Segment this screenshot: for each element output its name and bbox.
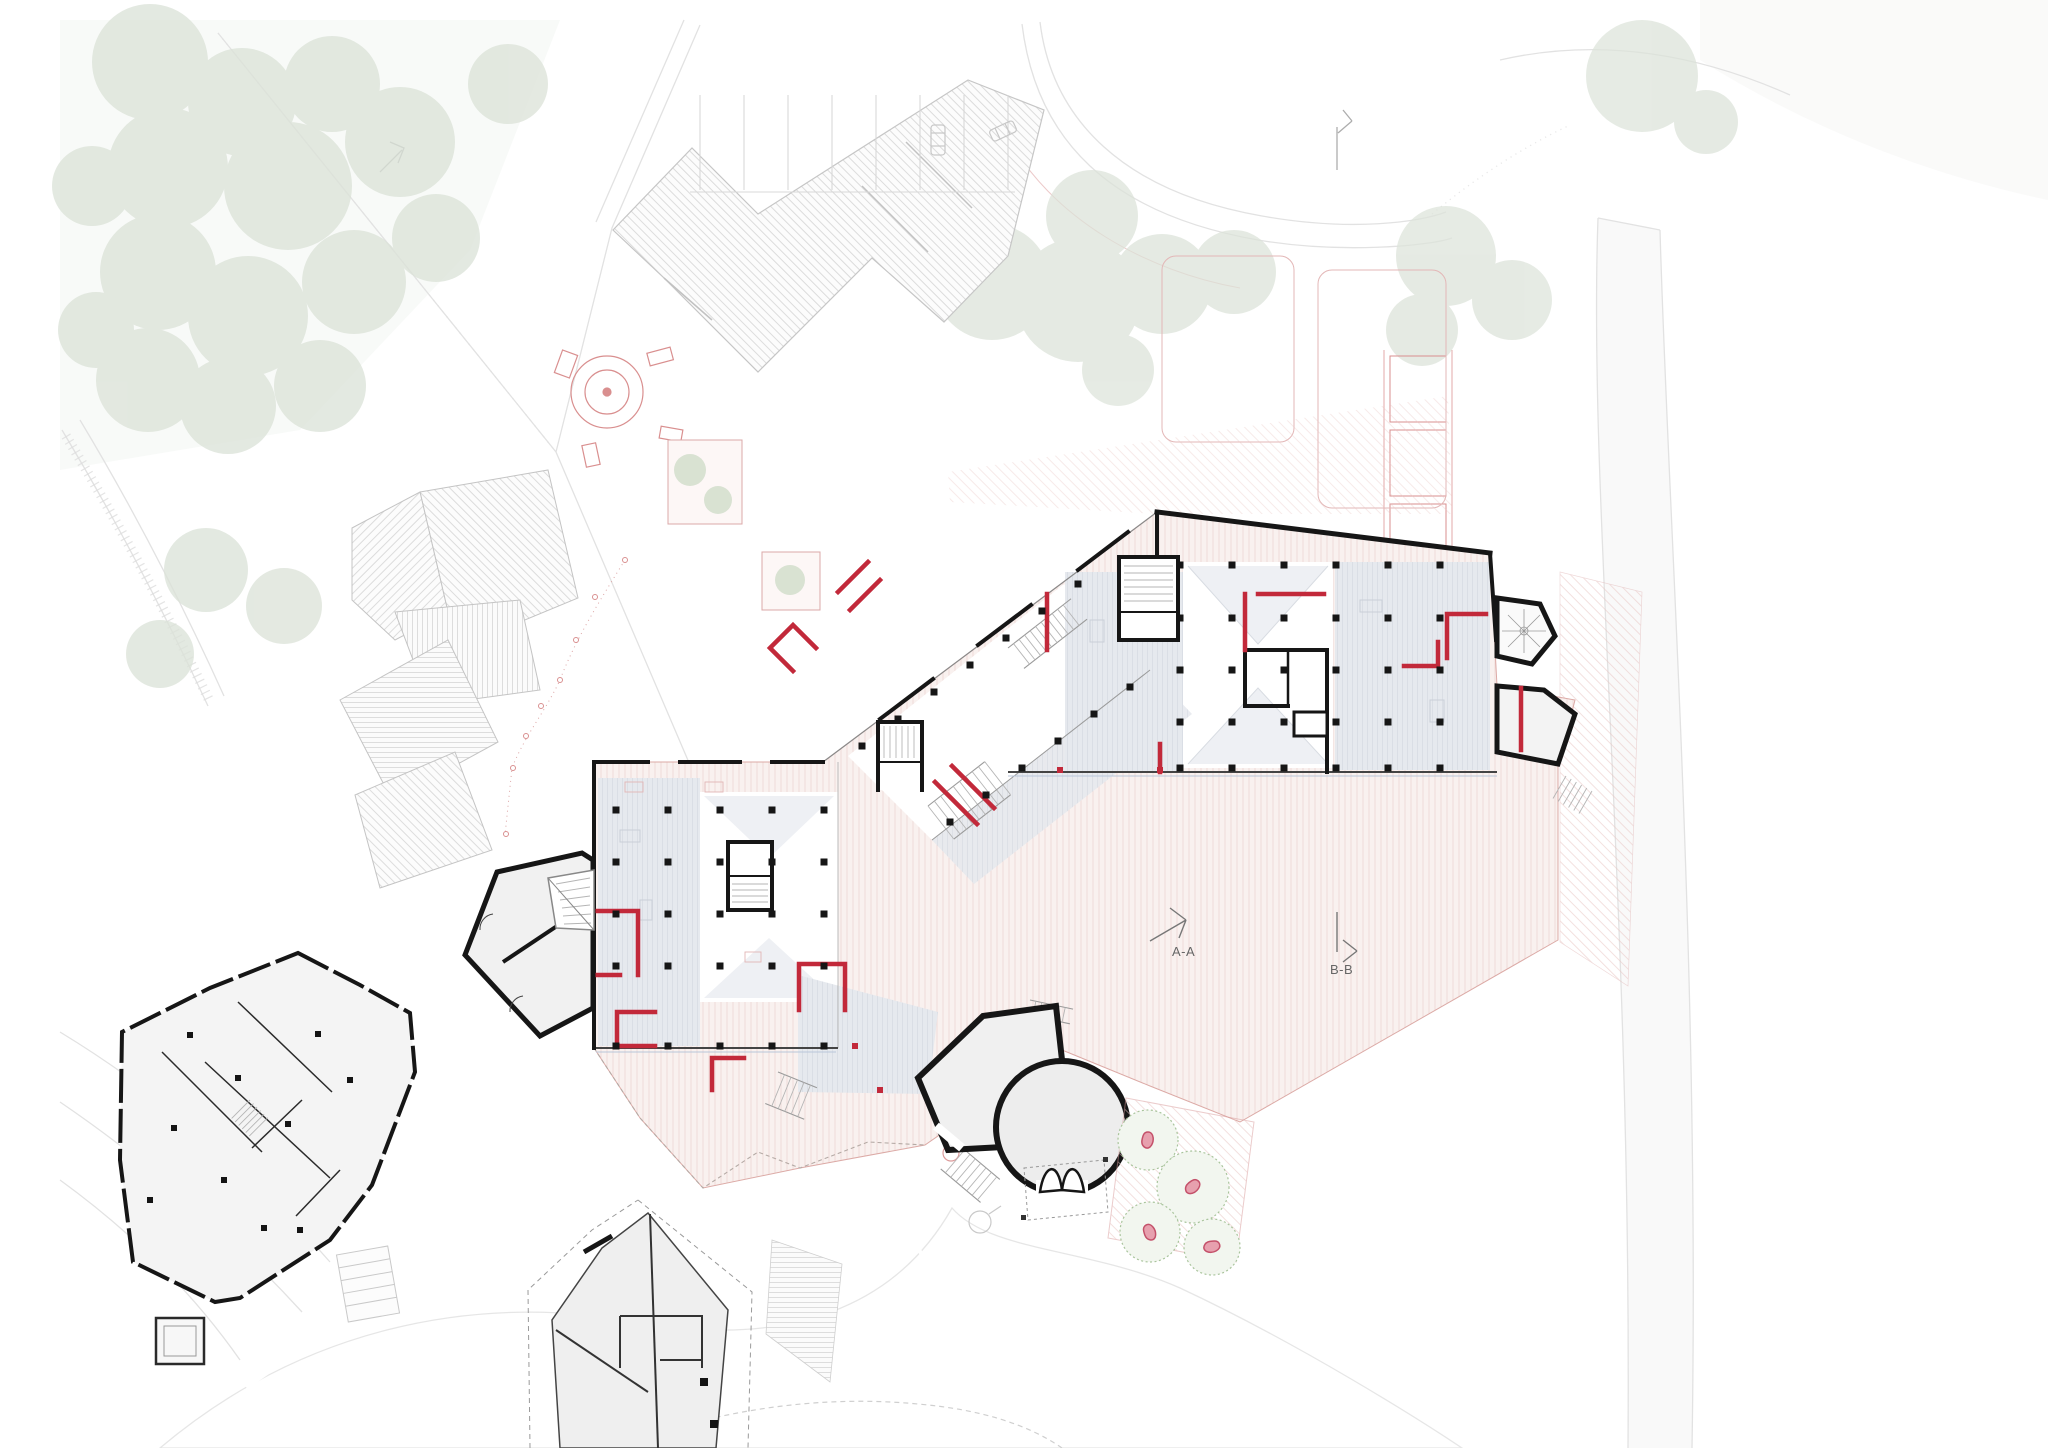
tree-canopy xyxy=(1386,294,1458,366)
tree-canopy xyxy=(302,230,406,334)
site-plan-drawing: A-A B-B xyxy=(0,0,2048,1448)
tree-canopy xyxy=(126,620,194,688)
tree-canopy xyxy=(180,358,276,454)
tree-canopy xyxy=(246,568,322,644)
context-trellis xyxy=(336,1246,399,1322)
stair-core-a xyxy=(878,722,922,790)
context-building-hexagon-south xyxy=(528,1200,842,1448)
tree-canopy xyxy=(274,340,366,432)
tree-canopy xyxy=(345,87,455,197)
planting-beds xyxy=(668,440,820,610)
pavilion-west xyxy=(465,853,594,1036)
terrace-hatch-right xyxy=(1560,572,1642,986)
hatch-wedge xyxy=(766,1240,842,1382)
flow-arrow-north xyxy=(1337,110,1352,170)
tree-canopy xyxy=(1674,90,1738,154)
playground xyxy=(554,347,682,467)
section-label-aa: A-A xyxy=(1172,944,1195,959)
context-pool xyxy=(156,1318,204,1364)
terrace-hatch-top xyxy=(948,396,1452,514)
section-label-bb: B-B xyxy=(1330,962,1353,977)
tree-canopy xyxy=(164,528,248,612)
tree-canopy xyxy=(1472,260,1552,340)
pavilion-circle xyxy=(996,1061,1128,1220)
tree-canopy xyxy=(224,122,352,250)
tree-canopy xyxy=(1082,334,1154,406)
tree-canopy xyxy=(1046,170,1138,262)
tree-canopy xyxy=(468,44,548,124)
tree-canopy xyxy=(52,146,132,226)
tree-canopy xyxy=(58,292,134,368)
fruit-trees xyxy=(1108,1098,1254,1275)
stair-core-b xyxy=(728,842,772,910)
tree-canopy xyxy=(1192,230,1276,314)
road-topright-hatchband xyxy=(1432,126,1568,214)
stair-core-c xyxy=(1119,557,1178,640)
spiral-stair-bay xyxy=(1497,598,1555,664)
site-plan-canvas: A-A B-B xyxy=(0,0,2048,1448)
turn-circle-symbol xyxy=(969,1206,1001,1233)
tree-canopy xyxy=(392,194,480,282)
main-building xyxy=(465,512,1592,1275)
stair-circle-west xyxy=(941,1146,1000,1202)
context-building-gabled-cluster xyxy=(340,470,578,888)
